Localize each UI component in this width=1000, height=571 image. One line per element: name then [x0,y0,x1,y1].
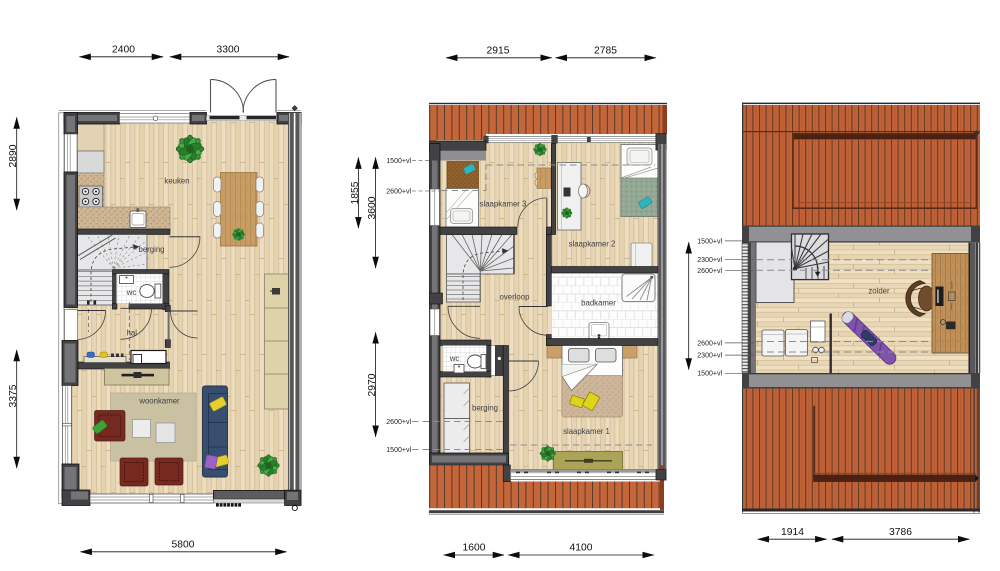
svg-text:2915: 2915 [487,46,510,57]
svg-text:zolder: zolder [868,287,890,296]
svg-text:1855: 1855 [350,181,361,204]
svg-text:1500+vl: 1500+vl [386,158,411,165]
svg-text:5800: 5800 [172,540,195,551]
svg-text:1914: 1914 [781,527,804,538]
svg-text:2600+vl: 2600+vl [697,340,722,347]
svg-text:3600: 3600 [367,196,378,219]
svg-text:slaapkamer 1: slaapkamer 1 [563,427,610,436]
svg-text:4100: 4100 [570,543,593,554]
svg-text:1500+vl: 1500+vl [386,447,411,454]
svg-text:berging: berging [138,245,164,254]
svg-text:wc: wc [449,354,460,363]
svg-text:2600+vl: 2600+vl [697,268,722,275]
svg-text:2970: 2970 [367,373,378,396]
svg-text:2890: 2890 [8,144,19,167]
svg-text:keuken: keuken [164,177,189,186]
svg-text:1500+vl: 1500+vl [697,238,722,245]
svg-text:badkamer: badkamer [581,299,616,308]
svg-text:2300+vl: 2300+vl [697,353,722,360]
svg-text:slaapkamer 3: slaapkamer 3 [480,200,527,209]
svg-text:2785: 2785 [594,46,617,57]
svg-text:3300: 3300 [217,45,240,56]
svg-text:hal: hal [127,329,138,338]
svg-text:3786: 3786 [889,527,912,538]
svg-text:2400: 2400 [112,45,135,56]
svg-text:2600+vl: 2600+vl [386,419,411,426]
svg-text:slaapkamer 2: slaapkamer 2 [569,240,616,249]
svg-text:berging: berging [472,404,498,413]
svg-text:wc: wc [126,288,137,297]
svg-text:1500+vl: 1500+vl [697,371,722,378]
svg-text:2600+vl: 2600+vl [386,189,411,196]
svg-text:1600: 1600 [463,543,486,554]
svg-text:overloop: overloop [500,293,531,302]
svg-text:2300+vl: 2300+vl [697,257,722,264]
svg-text:woonkamer: woonkamer [138,397,180,406]
svg-text:3375: 3375 [8,384,19,407]
